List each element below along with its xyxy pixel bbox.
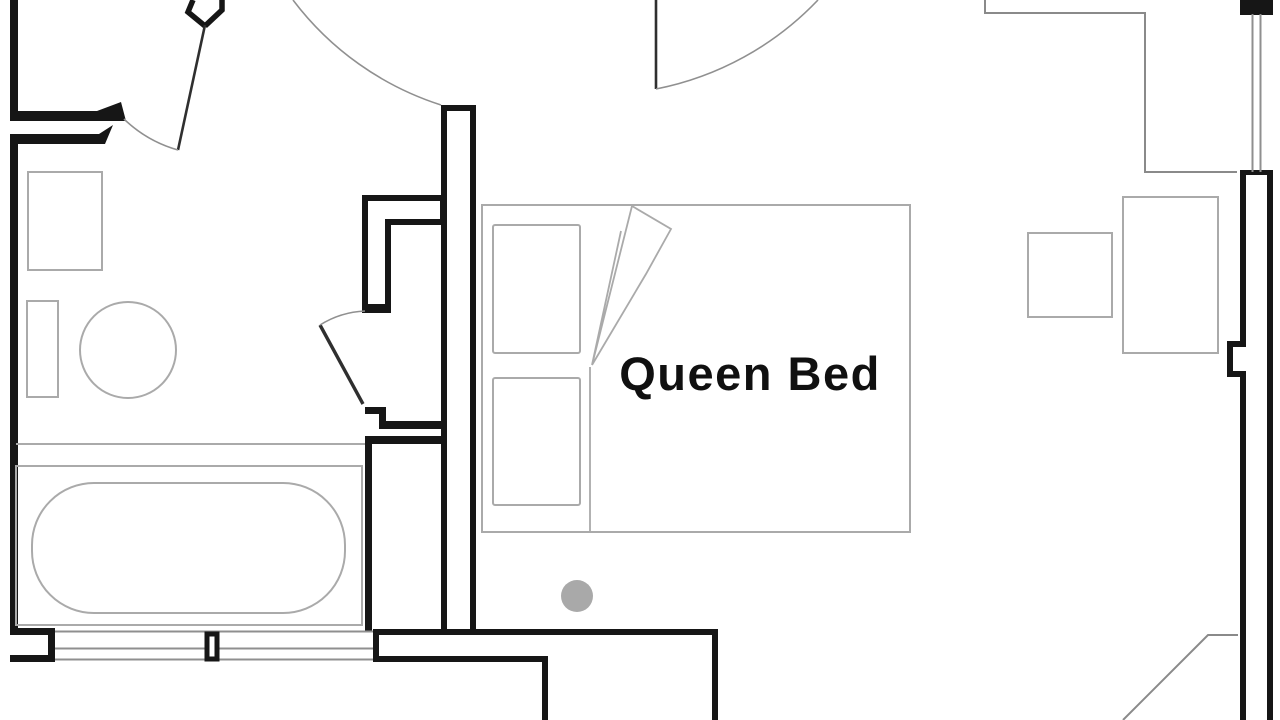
wall-right-outer-line bbox=[1267, 172, 1273, 720]
cabinet bbox=[28, 172, 102, 270]
lower-right-door-line bbox=[1123, 635, 1238, 720]
wall-right-inner-line bbox=[1230, 172, 1243, 720]
wall-bottom-bottom-edge bbox=[373, 656, 548, 662]
wall-closet-L-inner bbox=[368, 201, 440, 304]
wall-threshold-c bbox=[379, 421, 443, 429]
wall-bathroom-top-jamb bbox=[10, 125, 113, 144]
bedroom-door-swing-arc bbox=[656, 0, 818, 89]
wall-bathroom-right bbox=[365, 436, 372, 632]
bedroom: Queen Bed bbox=[482, 205, 910, 612]
wall-corner-step-top bbox=[10, 628, 55, 635]
window-right bbox=[1253, 14, 1261, 172]
wall-center-right-line bbox=[470, 105, 476, 633]
wall-threshold-d bbox=[365, 436, 443, 444]
floor-plan-canvas: Queen Bed bbox=[0, 0, 1280, 720]
pillow-bottom bbox=[493, 378, 580, 505]
entry-door-leaf bbox=[178, 25, 205, 150]
wall-hall-right-jamb bbox=[712, 629, 718, 720]
hall-door-swing-arc bbox=[293, 0, 441, 105]
wall-center-left-line bbox=[441, 105, 447, 633]
window-mullion bbox=[207, 634, 217, 659]
closet-partition-line bbox=[985, 0, 1237, 172]
bed-label: Queen Bed bbox=[619, 347, 881, 400]
bathtub bbox=[32, 483, 345, 613]
bathroom-door-swing-arc bbox=[320, 311, 365, 325]
floor-plan: Queen Bed bbox=[0, 0, 1280, 720]
wall-bottom-top-edge bbox=[373, 629, 718, 635]
closet-room bbox=[985, 0, 1238, 720]
windows bbox=[55, 14, 1261, 660]
wall-left-upper bbox=[10, 0, 18, 121]
wall-right-top-cap bbox=[1240, 0, 1273, 15]
sink-basin bbox=[80, 302, 176, 398]
pillow-top bbox=[493, 225, 580, 353]
entry-door-hinge-jamb bbox=[188, 0, 222, 26]
shelf bbox=[27, 301, 58, 397]
entry-door-swing-arc bbox=[124, 119, 178, 150]
floor-dot-marker bbox=[561, 580, 593, 612]
wall-hall-left-jamb bbox=[542, 656, 548, 720]
wall-corner-step-bottom bbox=[10, 655, 55, 662]
dresser bbox=[1123, 197, 1218, 353]
wall-entry-upper-jamb bbox=[10, 102, 126, 121]
bathroom-door-leaf bbox=[320, 325, 363, 404]
bathroom bbox=[16, 172, 365, 625]
side-table bbox=[1028, 233, 1112, 317]
